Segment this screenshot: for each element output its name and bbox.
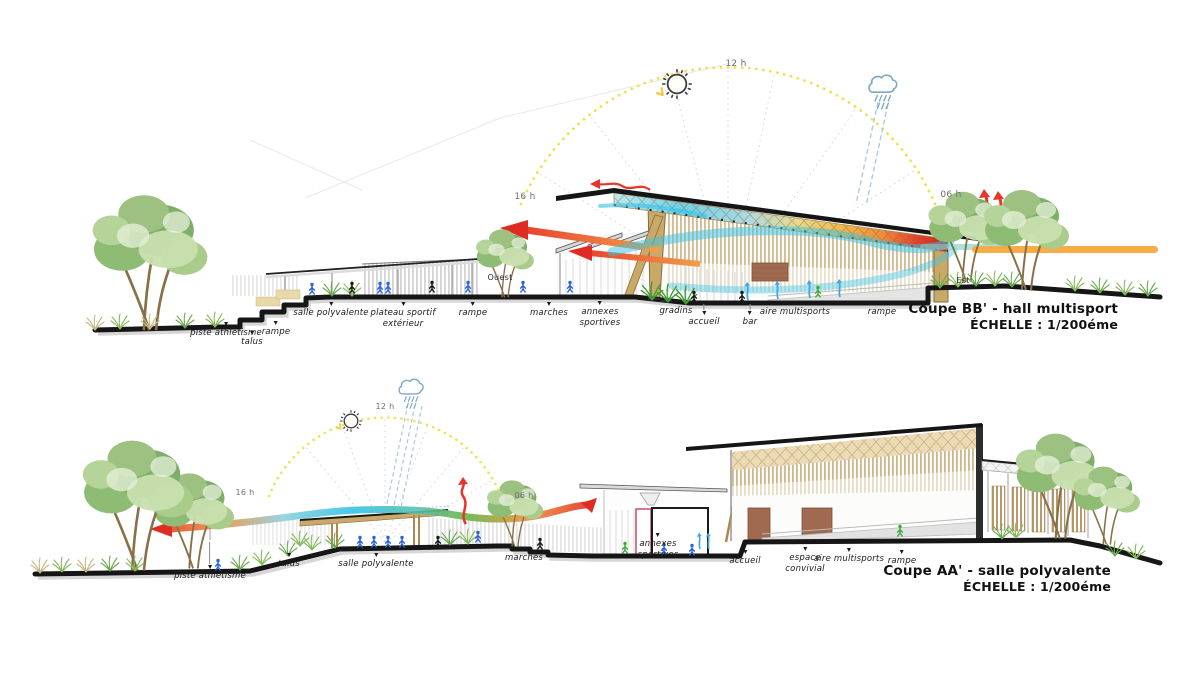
section-scale-bb-text: ÉCHELLE : 1/200éme — [908, 317, 1118, 332]
time-label-06h-bb: 06 h — [940, 190, 961, 200]
time-label-06h-aa: 06 h — [515, 491, 534, 500]
annotation-aire-multisports-bb: aire multisports — [760, 301, 830, 318]
section-title-bb-text: Coupe BB' - hall multisport — [908, 301, 1118, 317]
annotation-annexes-sportives-aa: annexes sportives — [638, 533, 679, 560]
orientation-east: Est — [956, 276, 969, 285]
sketch-guides-bb — [250, 62, 735, 198]
orientation-west: Ouest — [487, 273, 512, 282]
annotation-accueil-bb: accueil — [688, 304, 719, 328]
rain-cloud-icon — [869, 75, 897, 109]
annotation-talus-bb: talus — [241, 331, 263, 348]
section-bb-artwork — [86, 62, 1160, 334]
section-title-bb: Coupe BB' - hall multisport ÉCHELLE : 1/… — [908, 301, 1118, 332]
rain-cloud-icon — [399, 379, 423, 408]
annotation-marches-bb: marches — [530, 302, 568, 319]
annotation-rampe-2-bb: rampe — [459, 302, 488, 319]
sun-icon — [656, 69, 692, 99]
annotation-annexes-sportives-bb: annexes sportives — [580, 301, 621, 328]
annotation-rampe-3-bb: rampe — [868, 301, 897, 318]
time-label-16h-aa: 16 h — [236, 488, 255, 497]
annotation-bar-bb: bar — [743, 304, 758, 328]
annotation-aire-multisports-aa: aire multisports — [814, 548, 884, 565]
rain-streaks-aa — [386, 404, 422, 512]
annotation-rampe-1-bb: rampe — [262, 321, 291, 338]
annotation-accueil-aa: accueil — [729, 550, 760, 567]
building-complex-aa — [250, 423, 1108, 556]
annotation-talus-aa: talus — [278, 553, 300, 570]
section-title-aa-text: Coupe AA' - salle polyvalente — [883, 563, 1111, 579]
annotation-plateau-sportif-exterieur-bb: plateau sportif extérieur — [370, 302, 435, 329]
drawing-stage: 16 h 12 h 06 h Ouest Est piste athlétism… — [0, 0, 1200, 700]
annotation-marches-aa: marches — [505, 547, 543, 564]
canvas: { "sections": { "bb": { "title": "Coupe … — [0, 0, 1200, 700]
annotation-salle-polyvalente-aa: salle polyvalente — [338, 553, 413, 570]
section-scale-aa-text: ÉCHELLE : 1/200éme — [883, 579, 1111, 594]
time-label-12h-aa: 12 h — [376, 402, 395, 411]
time-label-12h-bb: 12 h — [725, 59, 746, 69]
rain-streaks-bb — [856, 102, 888, 206]
section-drawings — [0, 0, 1200, 700]
sun-icon — [336, 410, 362, 432]
annotation-piste-athletisme-aa: piste athlétisme — [174, 542, 246, 582]
time-label-16h-bb: 16 h — [514, 192, 535, 202]
section-title-aa: Coupe AA' - salle polyvalente ÉCHELLE : … — [883, 563, 1111, 594]
annotation-salle-polyvalente-bb: salle polyvalente — [293, 302, 368, 319]
